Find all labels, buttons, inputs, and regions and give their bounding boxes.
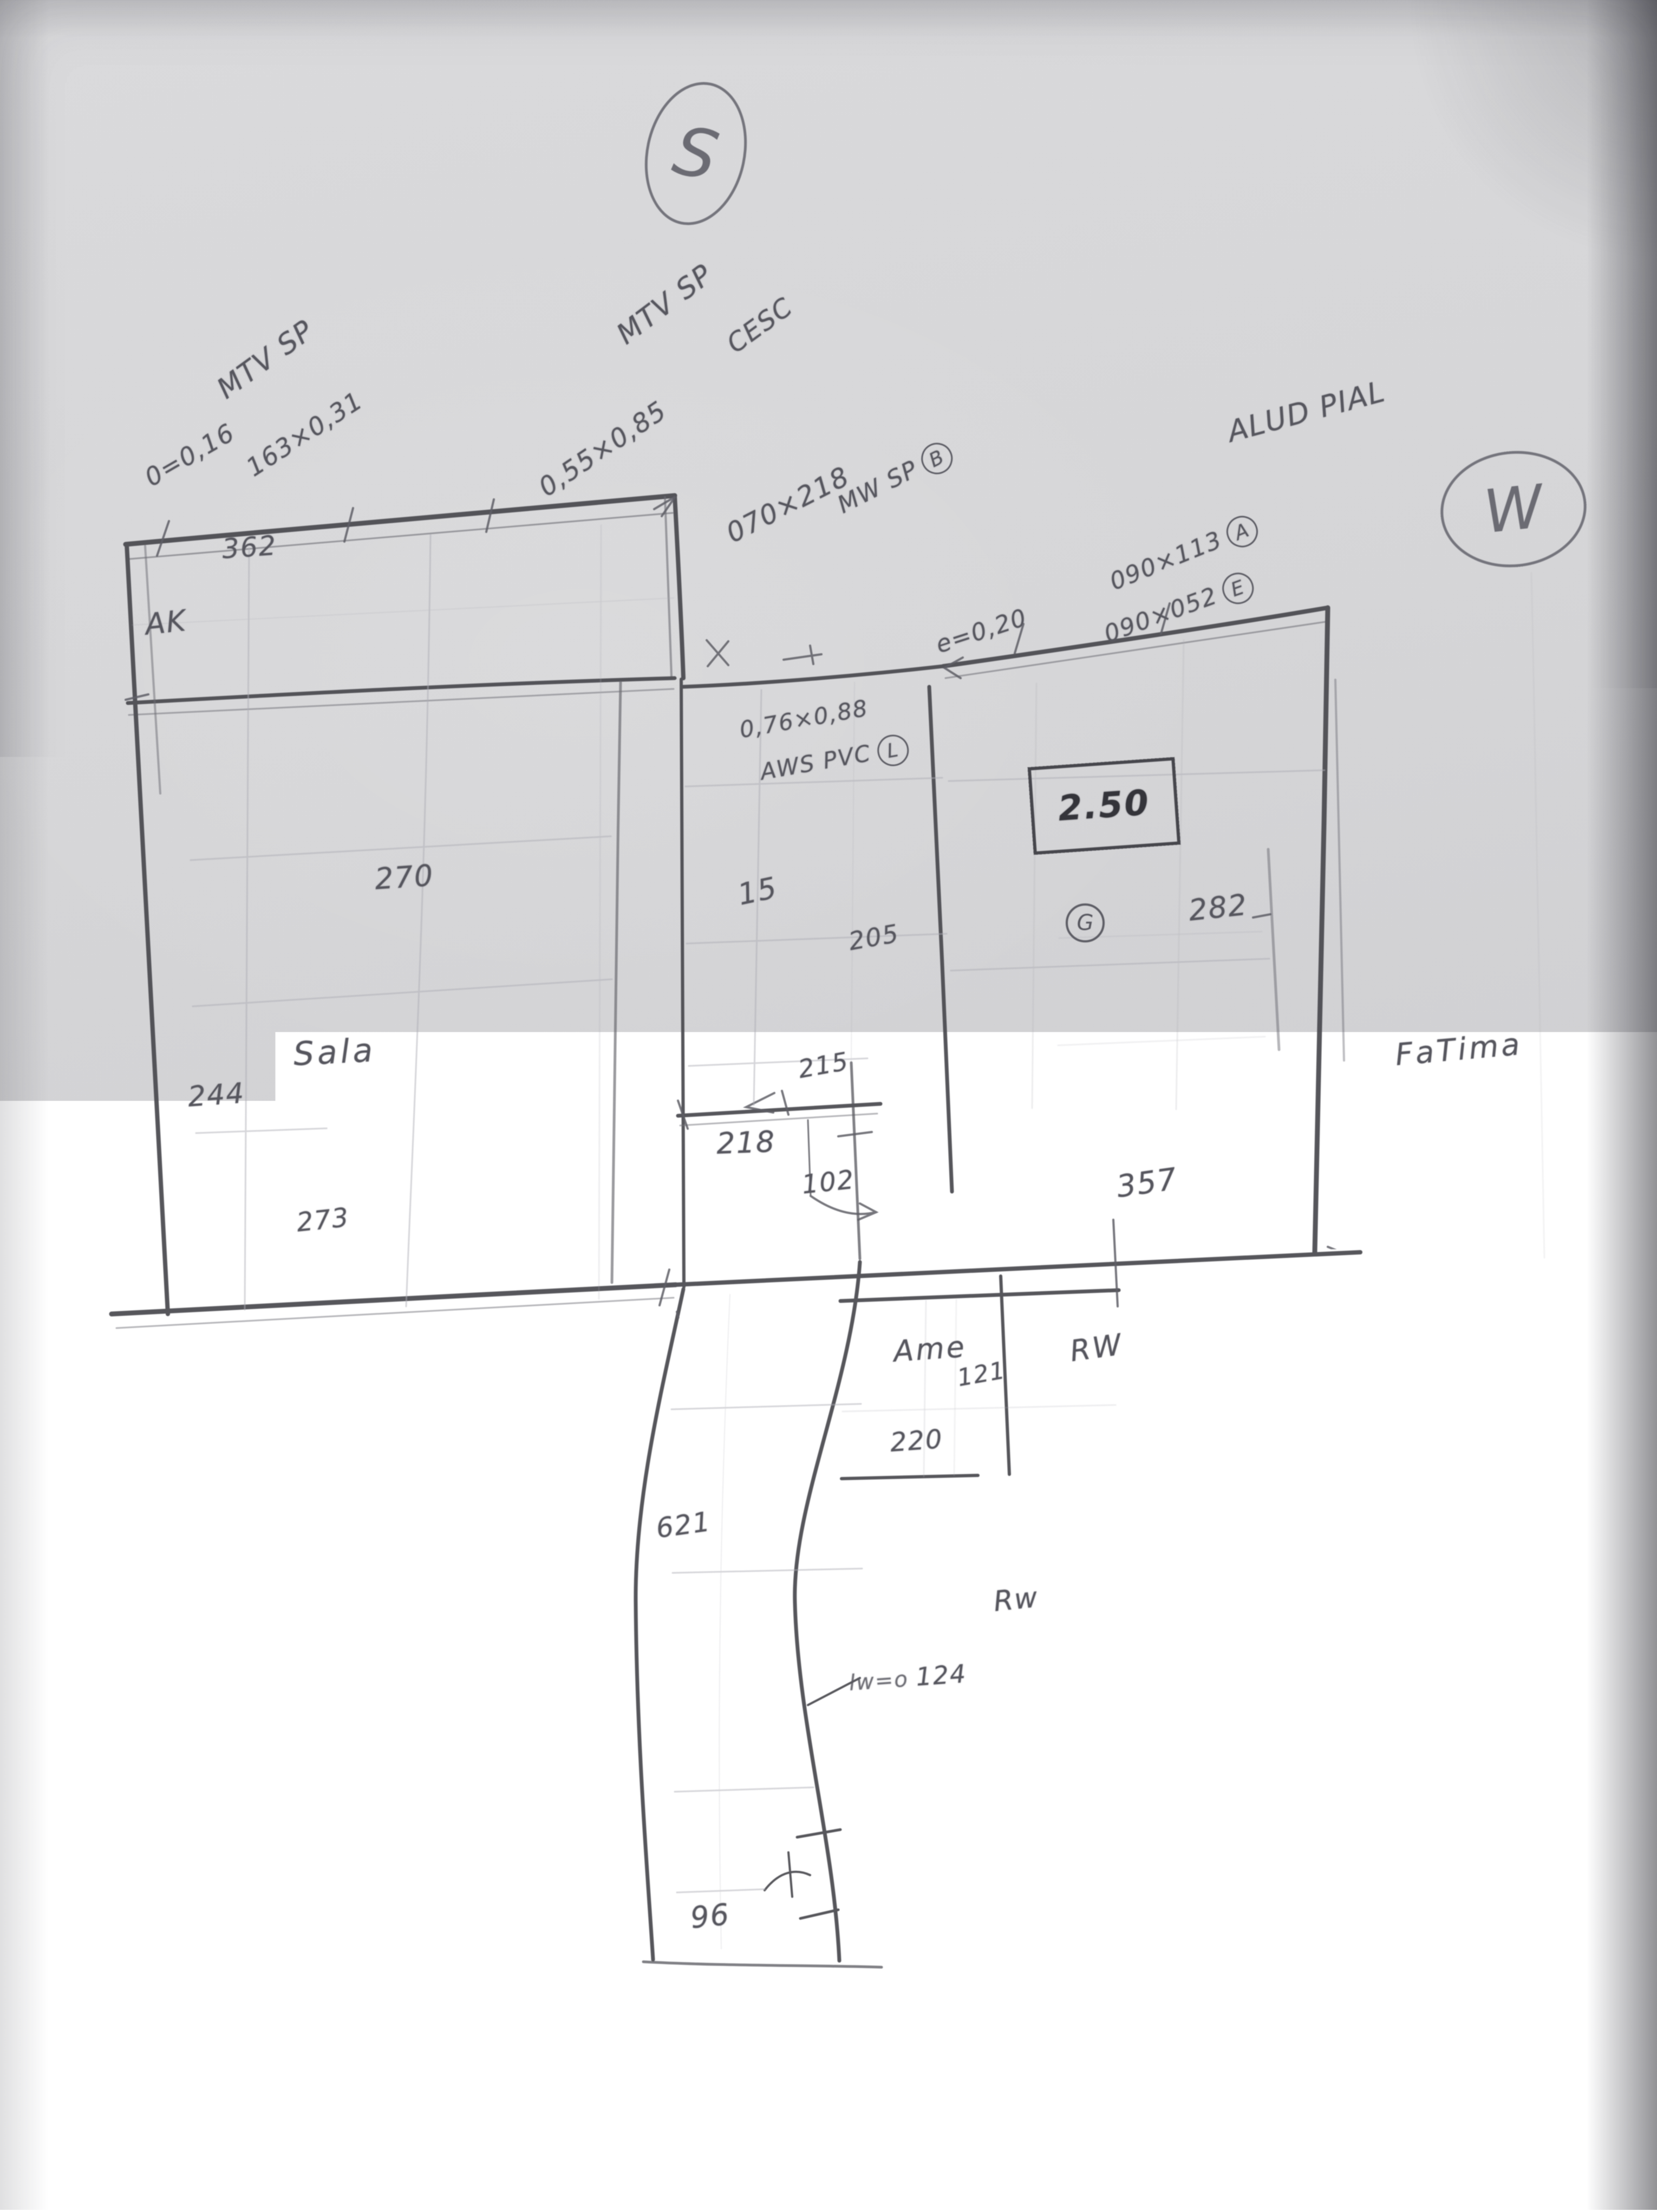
room-label-sala: Sala (292, 1031, 377, 1074)
dimension-124-value: 124 (915, 1659, 968, 1691)
paper-speck (1626, 2180, 1633, 2186)
dimension-362: 362 (221, 530, 278, 565)
dimension-273: 273 (295, 1202, 351, 1238)
compass-south-letter: S (667, 111, 725, 196)
dimension-270: 270 (374, 858, 435, 896)
boxed-height-value: 2.50 (1057, 783, 1152, 829)
dimension-96: 96 (689, 1897, 732, 1935)
photo-of-pencil-floorplan: { "sketch": { "compass": { "south": "S",… (0, 0, 1657, 2210)
dimension-282: 282 (1187, 888, 1249, 928)
boxed-height-note: 2.50 (1028, 757, 1181, 855)
circled-g-mark: G (1066, 903, 1105, 942)
pencil-ink-layer: S W MTV SP 0=0,16 163×0,31 362 MTV SP 0,… (0, 0, 1657, 2210)
dimension-220: 220 (889, 1424, 944, 1458)
room-label-ame: Ame (892, 1330, 968, 1369)
dimension-218: 218 (716, 1124, 776, 1161)
room-label-ak: AK (143, 603, 188, 642)
circled-tag-l: L (875, 732, 911, 769)
room-label-rw-lower: Rw (992, 1581, 1040, 1618)
floorplan-wall-sketch (0, 0, 1657, 2210)
paper-speck (1552, 1982, 1557, 1988)
compass-west-letter: W (1480, 472, 1547, 547)
dimension-124-prefix: lw=o (848, 1667, 909, 1696)
dimension-102: 102 (800, 1164, 856, 1200)
dimension-244: 244 (187, 1077, 246, 1114)
circled-g-letter: G (1077, 910, 1094, 935)
